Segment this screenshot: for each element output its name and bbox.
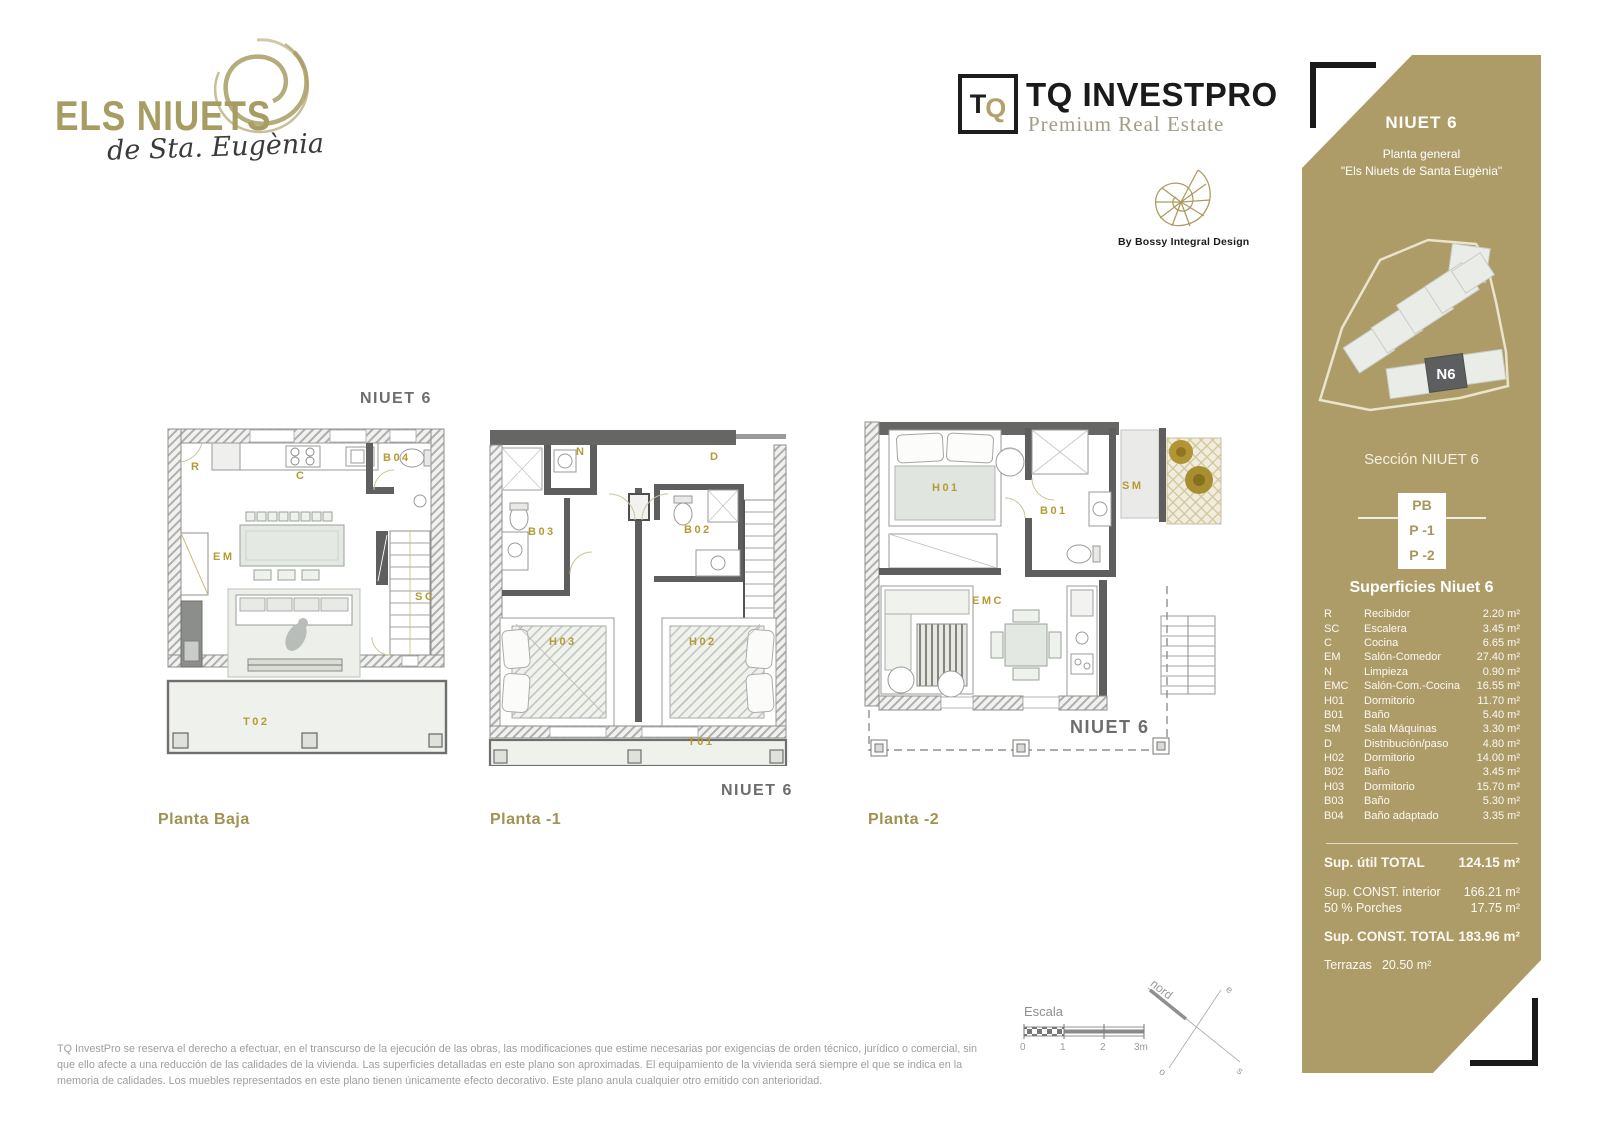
dining-table-emc [991,610,1061,680]
surface-name: Salón-Comedor [1364,651,1477,663]
center-wall [635,488,642,722]
surface-area: 14.00 m² [1477,752,1520,764]
room-label-sm: SM [1122,480,1144,492]
site-buildings [1343,244,1506,399]
sidebar-subtitle-2: "Els Niuets de Santa Eugènia" [1302,164,1541,178]
room-label-c: C [296,470,306,482]
surface-code: SC [1324,623,1364,635]
tq-logo-t: T [970,89,987,120]
room-label-h01: H01 [932,482,960,494]
bottom-wall [490,726,786,738]
surface-row: B01Baño5.40 m² [1324,708,1520,722]
patio-garden [1167,438,1221,524]
plan2-label: Planta -1 [490,811,561,829]
total-porches: 50 % Porches 17.75 m² [1324,901,1520,915]
section-title: Sección NIUET 6 [1302,451,1541,468]
tq-logo-icon: T Q [958,74,1018,134]
total-porches-value: 17.75 m² [1471,901,1520,915]
surface-row: SCEscalera3.45 m² [1324,621,1520,635]
surface-code: SM [1324,723,1364,735]
company-name: TQ INVESTPRO [1026,76,1278,114]
surface-row: CCocina6.65 m² [1324,636,1520,650]
surface-name: Dormitorio [1364,695,1477,707]
room-label-t02: T02 [243,716,269,728]
surface-row: SMSala Máquinas3.30 m² [1324,722,1520,736]
disclaimer-text: TQ InvestPro se reserva el derecho a efe… [57,1041,977,1090]
surface-code: R [1324,608,1364,620]
surface-area: 0.90 m² [1483,666,1520,678]
surface-name: Sala Máquinas [1364,723,1483,735]
bed-h02 [662,618,776,726]
plan1-floor-tag: NIUET 6 [360,390,432,408]
bed-h01 [889,430,1001,526]
total-util-label: Sup. útil TOTAL [1324,855,1425,870]
compass-east-label: e [1223,984,1235,996]
total-const-total-label: Sup. CONST. TOTAL [1324,929,1454,944]
surface-name: Baño adaptado [1364,810,1483,822]
top-wall [490,430,736,445]
surface-name: Dormitorio [1364,781,1477,793]
room-label-b03: B03 [528,526,556,538]
surface-code: C [1324,637,1364,649]
surface-code: D [1324,738,1364,750]
terrace-t02 [168,681,446,753]
kitchen-counter [212,443,378,470]
sidebar-subtitle-1: Planta general [1302,147,1541,161]
surface-row: EMSalón-Comedor27.40 m² [1324,650,1520,664]
corner-bracket-bottom [1470,998,1538,1066]
surface-area: 3.30 m² [1483,723,1520,735]
section-line-right [1446,517,1486,519]
machine-room-sm [1121,428,1166,522]
surface-area: 5.30 m² [1483,795,1520,807]
kitchen-strip [1067,580,1107,696]
surface-name: Cocina [1364,637,1483,649]
surface-row: DDistribución/paso4.80 m² [1324,737,1520,751]
bathroom-b01 [1005,428,1116,577]
surface-name: Salón-Com.-Cocina [1364,680,1477,692]
surface-code: EMC [1324,680,1364,692]
corner-bracket-top [1310,62,1376,128]
section-level-box: PB P -1 P -2 [1398,493,1446,569]
totals-divider [1326,843,1518,844]
terrace-columns [871,738,1169,756]
company-name-bold: PRO [1205,76,1278,113]
surfaces-title: Superficies Niuet 6 [1302,579,1541,597]
surface-code: B03 [1324,795,1364,807]
surface-area: 11.70 m² [1477,695,1520,707]
surface-row: B03Baño5.30 m² [1324,794,1520,808]
entry-door-arc [181,443,202,462]
left-wall [865,422,879,706]
storage-unit [181,601,202,667]
surfaces-table: RRecibidor2.20 m²SCEscalera3.45 m²CCocin… [1324,607,1520,823]
designer-credit: By Bossy Integral Design [1118,236,1248,248]
plan-sheet: ELS NIUETS de Sta. Eugènia T Q TQ INVEST… [0,0,1600,1131]
room-label-r: R [191,461,201,473]
surface-name: Distribución/paso [1364,738,1483,750]
surface-row: B02Baño3.45 m² [1324,765,1520,779]
room-label-h02: H02 [689,636,717,648]
total-const-total: Sup. CONST. TOTAL 183.96 m² [1324,929,1520,944]
surface-row: H01Dormitorio11.70 m² [1324,693,1520,707]
surface-area: 3.45 m² [1483,766,1520,778]
surface-area: 6.65 m² [1483,637,1520,649]
top-wall-thin [736,434,786,439]
bed-h03 [500,618,614,726]
surface-name: Recibidor [1364,608,1483,620]
surface-name: Baño [1364,766,1483,778]
surface-code: N [1324,666,1364,678]
total-terrazas: Terrazas 20.50 m² [1324,958,1520,972]
surface-row: RRecibidor2.20 m² [1324,607,1520,621]
total-util: Sup. útil TOTAL 124.15 m² [1324,855,1520,870]
surface-row: EMCSalón-Com.-Cocina16.55 m² [1324,679,1520,693]
nautilus-shell-icon [1148,164,1214,234]
room-label-sc: SC [415,591,435,603]
level-p2: P -2 [1398,543,1446,568]
room-label-b04: B04 [383,452,411,464]
sofa-emc [881,586,973,697]
room-label-emc: EMC [972,595,1004,607]
room-label-n: N [576,446,586,458]
level-pb: PB [1398,493,1446,518]
site-plan-map: N6 [1310,230,1534,430]
surface-code: EM [1324,651,1364,663]
scale-tick-1: 1 [1060,1042,1066,1053]
plan2-floor-tag: NIUET 6 [721,782,793,800]
surface-code: B02 [1324,766,1364,778]
surface-area: 5.40 m² [1483,709,1520,721]
surface-area: 3.45 m² [1483,623,1520,635]
compass-icon: nord e s o [1138,980,1250,1080]
tq-logo-q: Q [985,93,1006,124]
surface-code: B01 [1324,709,1364,721]
surface-name: Dormitorio [1364,752,1477,764]
section-diagram: PB P -1 P -2 [1302,493,1541,571]
section-line-left [1358,517,1398,519]
surface-name: Baño [1364,709,1483,721]
site-marker-n6: N6 [1425,354,1467,393]
level-p1: P -1 [1398,518,1446,543]
scale-label: Escala [1024,1004,1063,1019]
brand-script: de Sta. Eugènia [107,128,325,167]
surface-area: 27.40 m² [1477,651,1520,663]
sofa-tv-area [228,589,360,677]
scale-tick-2: 2 [1100,1042,1106,1053]
terrace-t01 [490,740,786,766]
total-util-value: 124.15 m² [1458,855,1520,870]
total-const-total-value: 183.96 m² [1458,929,1520,944]
room-label-b02: B02 [684,524,712,536]
room-label-t01: T01 [688,736,714,748]
scale-tick-0: 0 [1020,1042,1026,1053]
floorplan-planta-1 [486,424,790,766]
surface-code: H02 [1324,752,1364,764]
surface-name: Limpieza [1364,666,1483,678]
surface-name: Baño [1364,795,1483,807]
laundry-n [544,445,597,495]
total-porches-label: 50 % Porches [1324,901,1402,915]
plan3-label: Planta -2 [868,811,939,829]
company-tagline: Premium Real Estate [1028,112,1224,137]
room-label-h03: H03 [549,636,577,648]
company-name-regular: TQ INVEST [1026,76,1205,113]
plan3-floor-tag: NIUET 6 [1070,717,1150,738]
brand-logo: ELS NIUETS de Sta. Eugènia [55,30,355,170]
armchair [996,448,1024,476]
floorplan-planta-2 [853,414,1225,760]
surface-row: H03Dormitorio15.70 m² [1324,780,1520,794]
room-label-b01: B01 [1040,505,1068,517]
total-const-interior-label: Sup. CONST. interior [1324,885,1441,899]
surface-area: 2.20 m² [1483,608,1520,620]
room-label-d: D [710,451,720,463]
room-label-em: EM [213,551,235,563]
surface-code: B04 [1324,810,1364,822]
hall-closet [181,533,208,595]
site-marker-label: N6 [1436,366,1455,383]
surface-code: H01 [1324,695,1364,707]
total-terrazas-label: Terrazas [1324,958,1372,972]
surface-code: H03 [1324,781,1364,793]
surface-area: 15.70 m² [1477,781,1520,793]
surface-area: 16.55 m² [1477,680,1520,692]
surface-row: B04Baño adaptado3.35 m² [1324,808,1520,822]
surface-area: 4.80 m² [1483,738,1520,750]
total-const-interior: Sup. CONST. interior 166.21 m² [1324,885,1520,899]
total-const-interior-value: 166.21 m² [1464,885,1520,899]
surface-name: Escalera [1364,623,1483,635]
surface-row: NLimpieza0.90 m² [1324,665,1520,679]
bottom-walls [879,696,1107,710]
closet-h01 [879,534,1001,575]
compass-west-label: o [1157,1066,1169,1078]
surface-area: 3.35 m² [1483,810,1520,822]
total-terrazas-value: 20.50 m² [1382,958,1431,972]
scale-bar [1022,1024,1146,1040]
dining-table [240,525,344,566]
surface-row: H02Dormitorio14.00 m² [1324,751,1520,765]
sidebar: NIUET 6 Planta general "Els Niuets de Sa… [1302,55,1541,1073]
compass-south-label: s [1234,1066,1245,1078]
plan1-label: Planta Baja [158,811,250,829]
exterior-stairs [1161,616,1215,694]
